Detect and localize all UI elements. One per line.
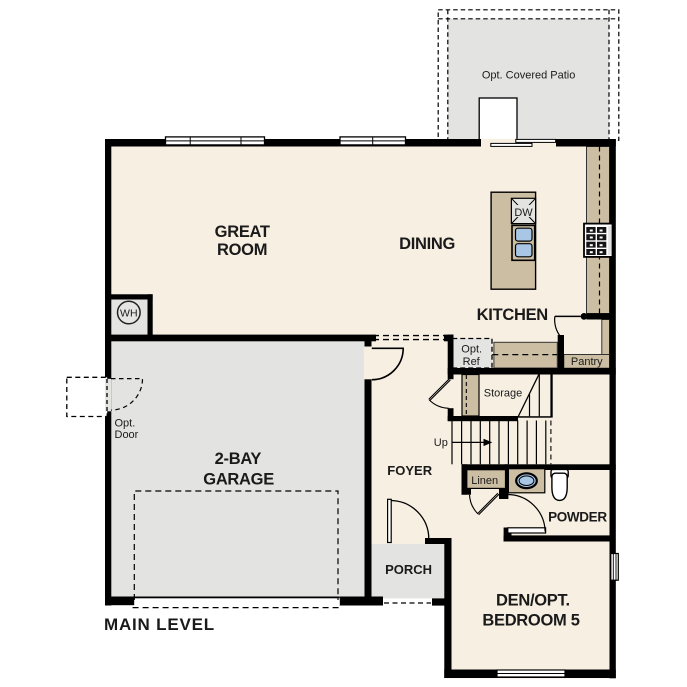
svg-text:2-BAY: 2-BAY [215,450,262,468]
svg-text:Opt. Covered Patio: Opt. Covered Patio [482,69,576,81]
svg-text:Door: Door [115,429,139,441]
svg-text:WH: WH [120,307,138,319]
svg-text:Linen: Linen [471,475,498,487]
svg-text:ROOM: ROOM [217,241,267,259]
svg-text:POWDER: POWDER [548,510,607,525]
svg-text:KITCHEN: KITCHEN [477,306,548,324]
svg-text:Opt.: Opt. [461,344,482,356]
svg-text:Opt.: Opt. [115,418,136,430]
svg-text:BEDROOM 5: BEDROOM 5 [482,611,579,629]
svg-text:PORCH: PORCH [385,562,432,577]
svg-text:Storage: Storage [484,388,523,400]
svg-text:DINING: DINING [399,235,455,253]
svg-text:DW: DW [514,207,533,219]
svg-text:Pantry: Pantry [571,356,603,368]
svg-text:DEN/OPT.: DEN/OPT. [496,592,570,610]
svg-text:Up: Up [434,437,448,449]
svg-text:FOYER: FOYER [387,463,432,478]
svg-text:MAIN LEVEL: MAIN LEVEL [104,615,215,634]
svg-text:GARAGE: GARAGE [203,471,274,489]
svg-text:Ref: Ref [463,356,481,368]
svg-text:GREAT: GREAT [215,223,270,241]
